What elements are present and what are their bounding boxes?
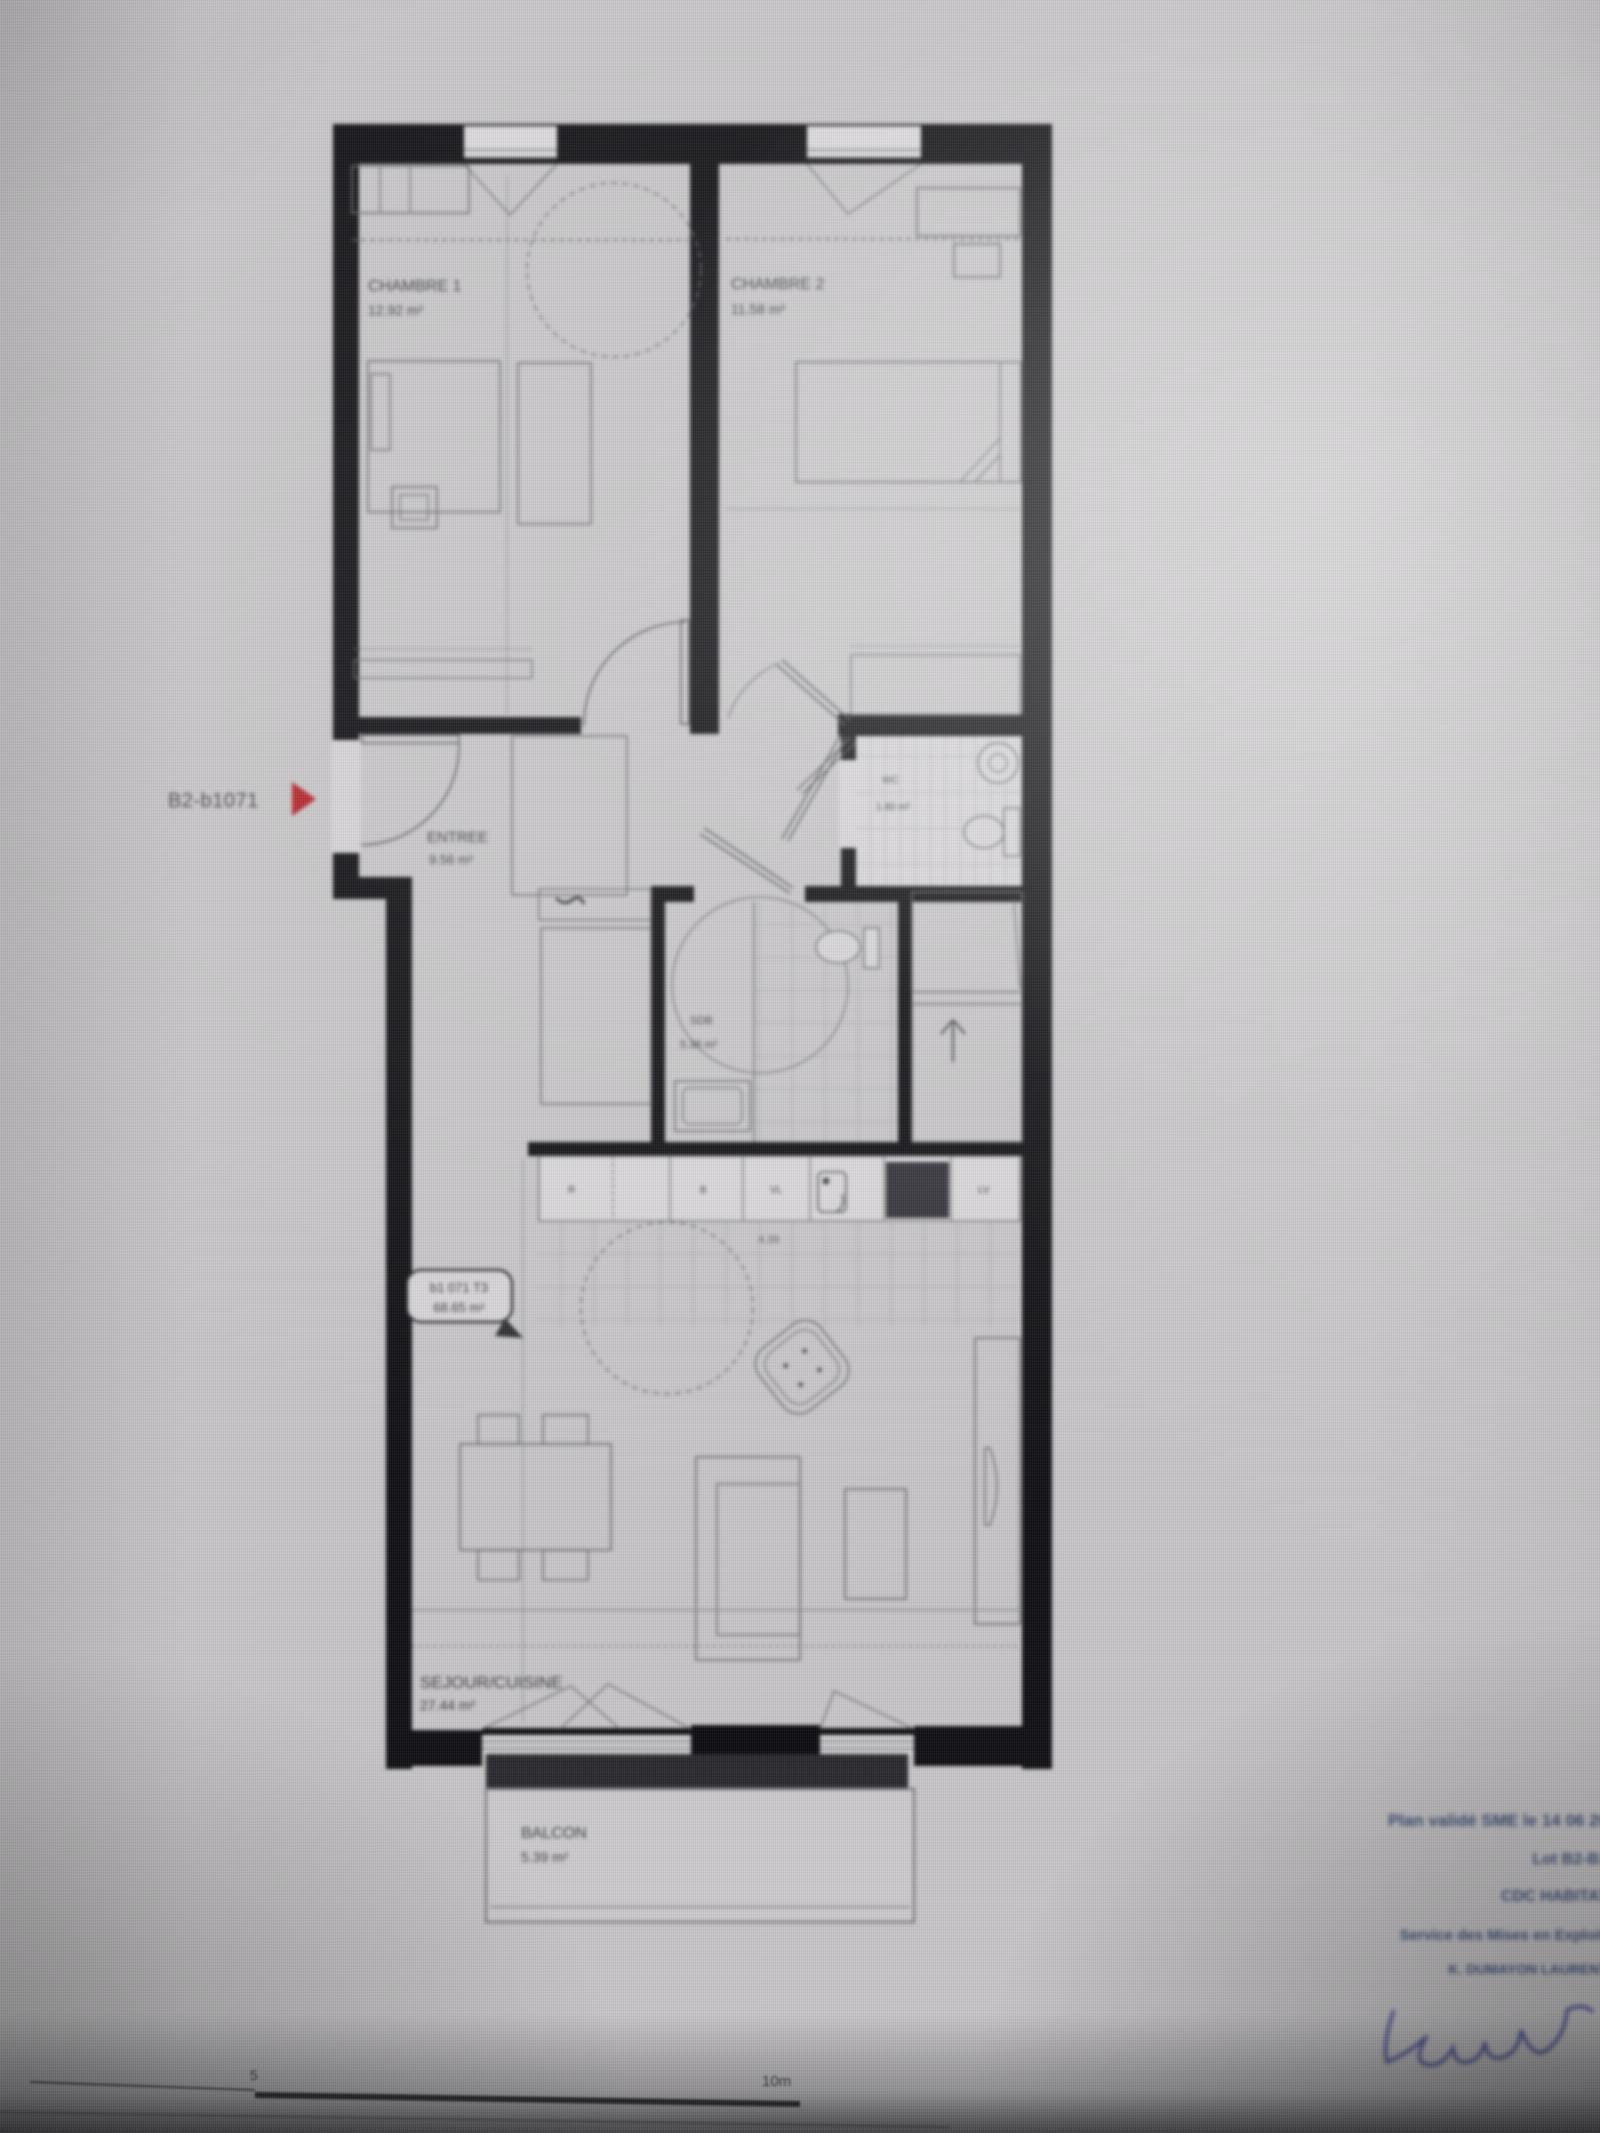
svg-text:ENTREE: ENTREE (427, 829, 488, 846)
svg-text:R: R (568, 1185, 575, 1196)
svg-text:CHAMBRE 1: CHAMBRE 1 (368, 278, 461, 295)
svg-text:SDB: SDB (690, 1015, 713, 1027)
svg-text:12.92 m²: 12.92 m² (368, 302, 424, 318)
svg-text:VL: VL (770, 1185, 783, 1196)
svg-text:Lot B2-B1: Lot B2-B1 (1532, 1851, 1600, 1868)
svg-text:11.58 m²: 11.58 m² (731, 301, 786, 317)
svg-text:B2-b1071: B2-b1071 (168, 790, 259, 812)
svg-text:WC: WC (882, 775, 899, 786)
svg-text:68.65 m²: 68.65 m² (433, 1300, 485, 1315)
svg-text:SEJOUR/CUISINE: SEJOUR/CUISINE (420, 1673, 563, 1692)
svg-text:Service des Mises en Exploitat: Service des Mises en Exploitat (1400, 1927, 1600, 1944)
svg-text:Plan validé SME le 14 06 20: Plan validé SME le 14 06 20 (1388, 1811, 1600, 1830)
svg-text:B: B (700, 1185, 707, 1196)
svg-text:10m: 10m (762, 2073, 791, 2090)
svg-text:K. DUMAYON LAURENT: K. DUMAYON LAURENT (1448, 1961, 1600, 1977)
svg-text:b1 071 T3: b1 071 T3 (430, 1280, 488, 1295)
svg-text:CHAMBRE 2: CHAMBRE 2 (731, 276, 824, 293)
svg-text:1.80 m²: 1.80 m² (876, 802, 911, 813)
svg-text:5.38 m²: 5.38 m² (680, 1039, 718, 1051)
svg-text:4.39: 4.39 (758, 1234, 779, 1246)
svg-text:LV: LV (978, 1185, 990, 1196)
svg-text:9.56 m²: 9.56 m² (429, 852, 474, 867)
svg-text:5: 5 (250, 2067, 258, 2083)
svg-text:5.39 m²: 5.39 m² (521, 1849, 569, 1865)
svg-text:27.44 m²: 27.44 m² (420, 1697, 476, 1713)
svg-text:CDC HABITAT: CDC HABITAT (1501, 1888, 1600, 1905)
svg-text:BALCON: BALCON (521, 1825, 587, 1842)
